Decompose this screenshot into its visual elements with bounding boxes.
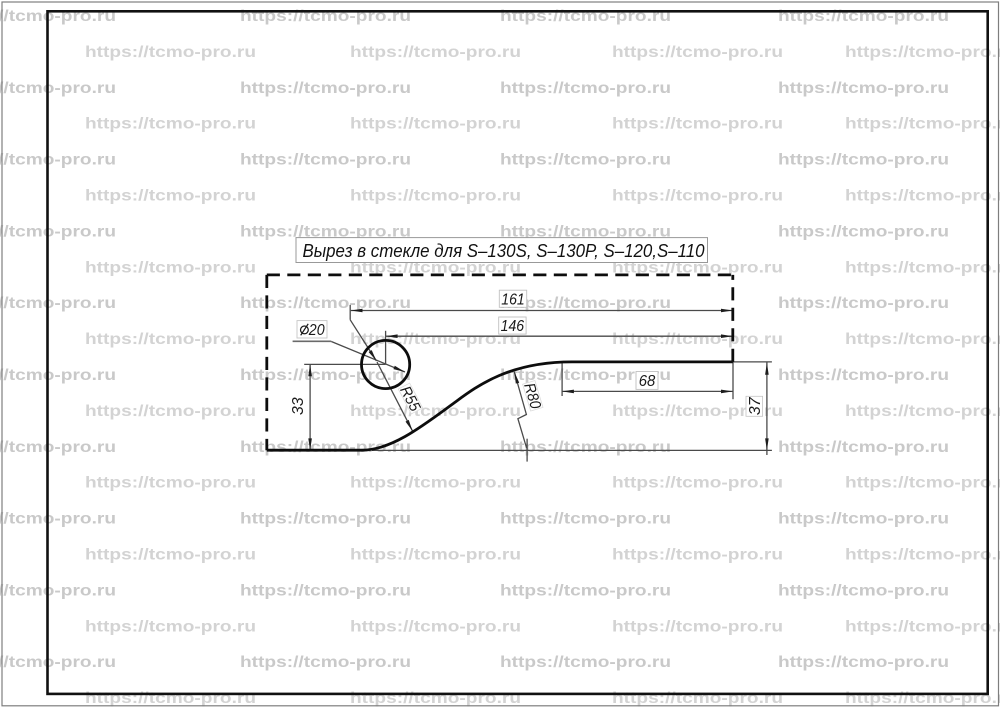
svg-text:37: 37 [747,396,764,415]
svg-text:https://tcmo-pro.ru: https://tcmo-pro.ru [778,582,949,599]
svg-text:https://tcmo-pro.ru: https://tcmo-pro.ru [350,547,521,564]
svg-text:https://tcmo-pro.ru: https://tcmo-pro.ru [845,259,1000,276]
svg-text:https://tcmo-pro.ru: https://tcmo-pro.ru [85,188,256,205]
svg-text:68: 68 [639,373,656,390]
svg-text:https://tcmo-pro.ru: https://tcmo-pro.ru [85,403,256,420]
svg-text:146: 146 [501,318,525,335]
svg-text:https://tcmo-pro.ru: https://tcmo-pro.ru [612,44,783,61]
svg-text:Вырез в стекле для S–130S, S–1: Вырез в стекле для S–130S, S–130P, S–120… [303,241,705,261]
svg-text:https://tcmo-pro.ru: https://tcmo-pro.ru [612,547,783,564]
svg-text:https://tcmo-pro.ru: https://tcmo-pro.ru [85,475,256,492]
svg-text:https://tcmo-pro.ru: https://tcmo-pro.ru [0,152,116,169]
svg-text:https://tcmo-pro.ru: https://tcmo-pro.ru [778,654,949,671]
svg-text:161: 161 [501,291,525,308]
svg-text:https://tcmo-pro.ru: https://tcmo-pro.ru [612,331,783,348]
svg-text:https://tcmo-pro.ru: https://tcmo-pro.ru [500,80,671,97]
svg-text:https://tcmo-pro.ru: https://tcmo-pro.ru [85,331,256,348]
svg-text:https://tcmo-pro.ru: https://tcmo-pro.ru [845,44,1000,61]
svg-text:https://tcmo-pro.ru: https://tcmo-pro.ru [350,331,521,348]
svg-text:https://tcmo-pro.ru: https://tcmo-pro.ru [612,188,783,205]
svg-text:https://tcmo-pro.ru: https://tcmo-pro.ru [845,547,1000,564]
svg-text:https://tcmo-pro.ru: https://tcmo-pro.ru [85,44,256,61]
svg-text:https://tcmo-pro.ru: https://tcmo-pro.ru [350,116,521,133]
svg-text:https://tcmo-pro.ru: https://tcmo-pro.ru [85,259,256,276]
svg-text:https://tcmo-pro.ru: https://tcmo-pro.ru [0,654,116,671]
svg-text:33: 33 [290,397,307,415]
svg-text:https://tcmo-pro.ru: https://tcmo-pro.ru [845,188,1000,205]
svg-text:https://tcmo-pro.ru: https://tcmo-pro.ru [845,331,1000,348]
svg-text:https://tcmo-pro.ru: https://tcmo-pro.ru [845,116,1000,133]
svg-text:https://tcmo-pro.ru: https://tcmo-pro.ru [85,547,256,564]
svg-text:https://tcmo-pro.ru: https://tcmo-pro.ru [0,439,116,456]
svg-text:https://tcmo-pro.ru: https://tcmo-pro.ru [500,654,671,671]
svg-text:https://tcmo-pro.ru: https://tcmo-pro.ru [778,367,949,384]
svg-text:https://tcmo-pro.ru: https://tcmo-pro.ru [0,511,116,528]
svg-text:https://tcmo-pro.ru: https://tcmo-pro.ru [0,295,116,312]
svg-text:https://tcmo-pro.ru: https://tcmo-pro.ru [0,367,116,384]
svg-text:https://tcmo-pro.ru: https://tcmo-pro.ru [240,152,411,169]
svg-text:https://tcmo-pro.ru: https://tcmo-pro.ru [0,80,116,97]
svg-text:https://tcmo-pro.ru: https://tcmo-pro.ru [845,618,1000,635]
svg-text:https://tcmo-pro.ru: https://tcmo-pro.ru [350,44,521,61]
svg-text:20: 20 [308,322,325,339]
svg-text:https://tcmo-pro.ru: https://tcmo-pro.ru [500,511,671,528]
svg-text:https://tcmo-pro.ru: https://tcmo-pro.ru [350,618,521,635]
svg-text:https://tcmo-pro.ru: https://tcmo-pro.ru [0,223,116,240]
svg-text:https://tcmo-pro.ru: https://tcmo-pro.ru [85,618,256,635]
svg-text:https://tcmo-pro.ru: https://tcmo-pro.ru [778,295,949,312]
svg-text:https://tcmo-pro.ru: https://tcmo-pro.ru [845,403,1000,420]
svg-text:https://tcmo-pro.ru: https://tcmo-pro.ru [612,475,783,492]
svg-text:https://tcmo-pro.ru: https://tcmo-pro.ru [778,80,949,97]
svg-text:https://tcmo-pro.ru: https://tcmo-pro.ru [500,439,671,456]
svg-text:https://tcmo-pro.ru: https://tcmo-pro.ru [350,475,521,492]
svg-text:https://tcmo-pro.ru: https://tcmo-pro.ru [778,223,949,240]
svg-text:https://tcmo-pro.ru: https://tcmo-pro.ru [85,116,256,133]
svg-text:https://tcmo-pro.ru: https://tcmo-pro.ru [240,80,411,97]
svg-text:https://tcmo-pro.ru: https://tcmo-pro.ru [612,116,783,133]
svg-text:https://tcmo-pro.ru: https://tcmo-pro.ru [778,511,949,528]
svg-text:https://tcmo-pro.ru: https://tcmo-pro.ru [500,582,671,599]
svg-text:https://tcmo-pro.ru: https://tcmo-pro.ru [500,152,671,169]
svg-text:https://tcmo-pro.ru: https://tcmo-pro.ru [612,618,783,635]
svg-text:https://tcmo-pro.ru: https://tcmo-pro.ru [845,475,1000,492]
svg-text:https://tcmo-pro.ru: https://tcmo-pro.ru [240,654,411,671]
svg-text:https://tcmo-pro.ru: https://tcmo-pro.ru [778,152,949,169]
svg-text:https://tcmo-pro.ru: https://tcmo-pro.ru [240,582,411,599]
svg-text:https://tcmo-pro.ru: https://tcmo-pro.ru [778,439,949,456]
svg-text:https://tcmo-pro.ru: https://tcmo-pro.ru [350,188,521,205]
svg-text:https://tcmo-pro.ru: https://tcmo-pro.ru [0,582,116,599]
svg-text:https://tcmo-pro.ru: https://tcmo-pro.ru [240,511,411,528]
